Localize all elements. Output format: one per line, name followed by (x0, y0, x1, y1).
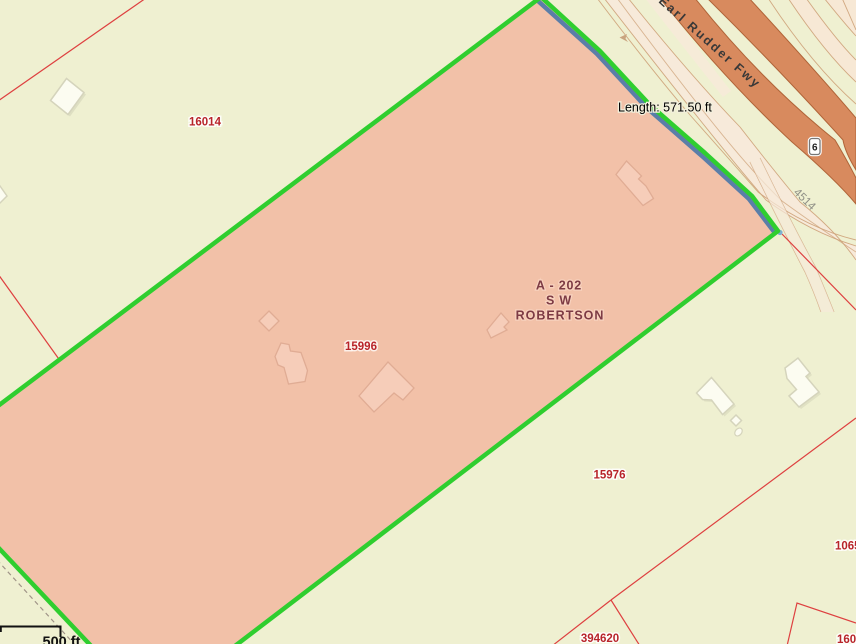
svg-text:6: 6 (812, 143, 818, 154)
svg-text:16014: 16014 (189, 117, 222, 129)
svg-text:A - 202: A - 202 (536, 279, 582, 293)
svg-text:394620: 394620 (581, 633, 619, 644)
svg-text:S W: S W (546, 294, 572, 308)
svg-text:16021: 16021 (837, 634, 856, 644)
svg-text:15996: 15996 (345, 341, 377, 353)
svg-text:ROBERTSON: ROBERTSON (516, 309, 605, 323)
svg-text:500 ft: 500 ft (43, 635, 81, 644)
svg-text:15976: 15976 (594, 470, 626, 482)
svg-text:Length: 571.50 ft: Length: 571.50 ft (618, 101, 712, 115)
svg-text:10651: 10651 (835, 541, 856, 553)
